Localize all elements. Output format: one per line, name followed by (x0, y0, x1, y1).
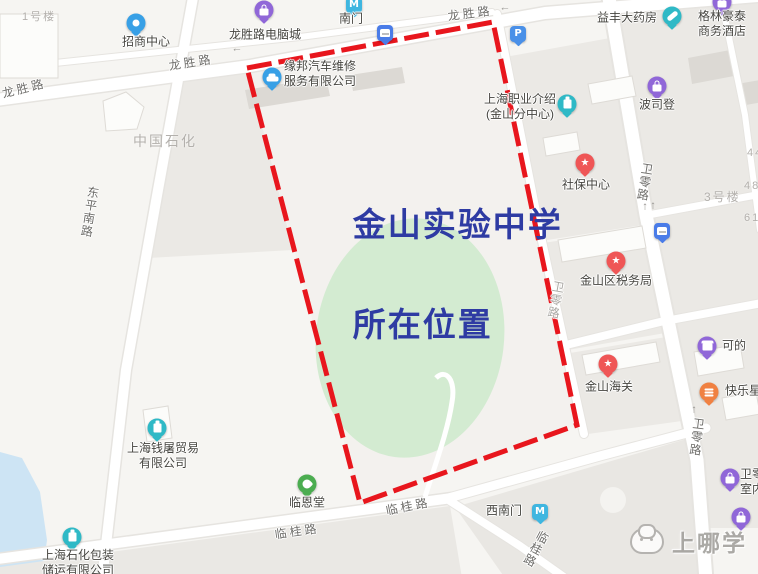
car-glyph (266, 76, 278, 81)
shop-glyph (702, 344, 712, 351)
poi-greentree-hotel-label: 格林豪泰 商务酒店 (698, 9, 746, 39)
food-glyph (705, 391, 714, 393)
poi-weiling-poi-1-bag-icon[interactable] (721, 469, 740, 488)
poi-yuanbang-auto-repair-label: 缘邦汽车维修 服务有限公司 (284, 59, 356, 89)
poi-shihua-packaging-label: 上海石化包装 储运有限公司 (42, 548, 114, 574)
poi-yifeng-pharmacy-label: 益丰大药房 (597, 11, 657, 26)
poi-bosideng-label: 波司登 (639, 98, 675, 113)
poi-shanghai-job-intro-center-building-icon[interactable] (558, 95, 577, 114)
bag-glyph (718, 0, 727, 7)
poi-linentang-scenic-icon[interactable] (298, 475, 317, 494)
poi-yifeng-pharmacy-capsule-icon[interactable] (663, 7, 682, 26)
area-label-sinopec-area: 中国石化 (133, 131, 197, 151)
poi-shebao-center-star-icon[interactable]: ★ (576, 154, 595, 173)
poi-parking-lot-parking-icon[interactable]: P (510, 26, 526, 42)
building-glyph (153, 424, 161, 433)
bag-glyph (653, 84, 662, 91)
poi-xinanmen-metro-metro-icon[interactable]: M (532, 504, 548, 520)
poi-kedi-store-label: 可的 (722, 339, 746, 354)
metro-glyph: M (349, 0, 359, 10)
scenic-glyph (301, 478, 314, 491)
poi-longshenglu-computer-city-label: 龙胜路电脑城 (229, 28, 301, 43)
poi-zhaoshang-center-dot-icon[interactable] (127, 14, 146, 33)
building-glyph (563, 100, 571, 109)
poi-weiling-poi-1-label: 卫零 室内 (740, 467, 758, 497)
poi-longshenglu-computer-city-bag-icon[interactable] (255, 1, 274, 20)
poi-jinshan-tax-bureau-label: 金山区税务局 (580, 274, 652, 289)
poi-bus-stop-longsheng-bus-icon[interactable] (377, 25, 393, 41)
watermark-text: 上哪学 (672, 524, 747, 558)
poi-qiantu-trading-label: 上海钱屠贸易 有限公司 (127, 441, 199, 471)
poi-kuailexing-label: 快乐星 (725, 384, 758, 399)
road-direction-arrow-2: ← (500, 3, 511, 14)
poi-shihua-packaging-building-icon[interactable] (63, 528, 82, 547)
shangnaxue-logo-icon (630, 528, 664, 554)
watermark: 上哪学 (630, 524, 747, 558)
road-direction-arrow-3: ↑ (642, 202, 648, 213)
poi-nanmen-metro-label: 南门 (339, 12, 363, 27)
bag-glyph (737, 515, 746, 522)
road-direction-arrow-5: ↑ (691, 405, 697, 416)
parking-glyph: P (514, 29, 521, 39)
bus-glyph (657, 227, 667, 235)
poi-zhaoshang-center-label: 招商中心 (122, 35, 170, 50)
star-glyph: ★ (604, 359, 613, 369)
bag-glyph (726, 476, 735, 483)
poi-jinshan-tax-bureau-star-icon[interactable]: ★ (607, 252, 626, 271)
metro-glyph: M (535, 507, 545, 517)
caption-line2: 所在位置 (353, 306, 493, 343)
school-location-caption: 金山实验中学 所在位置 (308, 150, 563, 400)
area-label-building-no61: 61号 (744, 209, 758, 225)
poi-shebao-center-label: 社保中心 (562, 178, 610, 193)
poi-jinshan-customs-star-icon[interactable]: ★ (599, 355, 618, 374)
bag-glyph (260, 8, 269, 15)
area-label-building-no44: 44号 (747, 144, 758, 160)
road-direction-arrow-1: ← (232, 44, 243, 55)
caption-line1: 金山实验中学 (353, 206, 563, 243)
poi-yuanbang-auto-repair-car-icon[interactable] (263, 68, 282, 87)
bus-glyph (380, 29, 390, 37)
poi-kuailexing-food-icon[interactable] (700, 383, 719, 402)
poi-qiantu-trading-building-icon[interactable] (148, 419, 167, 438)
poi-kedi-store-shop-icon[interactable] (698, 337, 717, 356)
poi-bosideng-bag-icon[interactable] (648, 77, 667, 96)
area-label-building-no48: 48号 (744, 177, 758, 193)
poi-jinshan-customs-label: 金山海关 (585, 380, 633, 395)
star-glyph: ★ (612, 256, 621, 266)
poi-shanghai-job-intro-center-label: 上海职业介绍 (金山分中心) (484, 92, 556, 122)
star-glyph: ★ (581, 158, 590, 168)
area-label-building-no1: 1号楼 (22, 8, 56, 24)
dot-glyph (133, 20, 140, 27)
road-direction-arrow-4: ↑ (650, 201, 656, 212)
poi-linentang-label: 临恩堂 (289, 496, 325, 511)
map-canvas[interactable]: 龙胜路龙胜路龙胜路东平南路卫零路卫零路卫零路临桂路临桂路临桂路中国石化1号楼3号… (0, 0, 758, 574)
area-label-building-no3: 3号楼 (704, 188, 741, 205)
building-glyph (68, 533, 76, 542)
poi-xinanmen-metro-label: 西南门 (486, 504, 522, 519)
poi-bus-stop-weiling-bus-icon[interactable] (654, 223, 670, 239)
